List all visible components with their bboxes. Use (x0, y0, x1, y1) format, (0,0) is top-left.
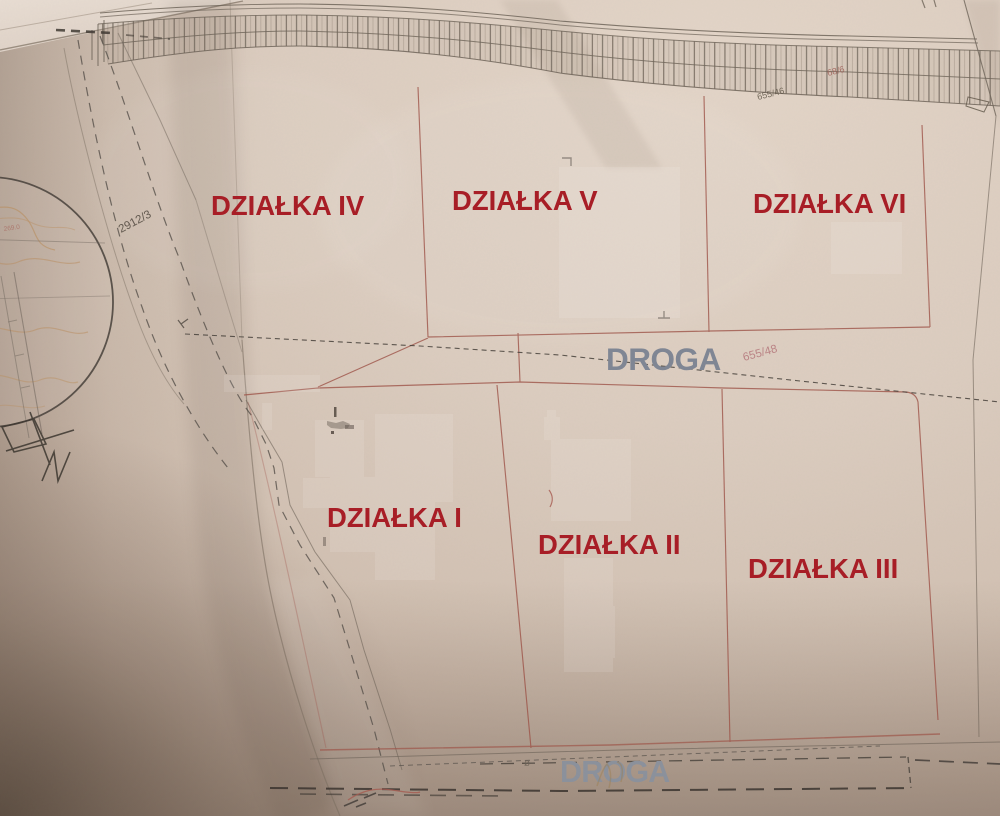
svg-text:DZIAŁKA VI: DZIAŁKA VI (753, 188, 906, 219)
svg-text:DZIAŁKA IV: DZIAŁKA IV (211, 190, 365, 221)
svg-text:ø: ø (524, 758, 530, 769)
svg-text:DZIAŁKA I: DZIAŁKA I (327, 502, 462, 533)
svg-text:DZIAŁKA III: DZIAŁKA III (748, 553, 898, 584)
svg-text:DROGA: DROGA (606, 341, 721, 377)
svg-text:DZIAŁKA II: DZIAŁKA II (538, 529, 681, 560)
svg-text:DROGA: DROGA (560, 755, 670, 789)
svg-text:DZIAŁKA V: DZIAŁKA V (452, 185, 598, 216)
